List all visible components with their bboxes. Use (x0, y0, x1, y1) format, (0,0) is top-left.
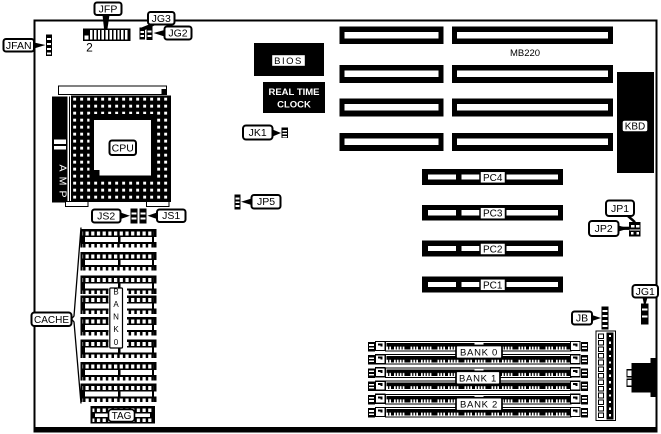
svg-text:PC4: PC4 (483, 173, 503, 184)
svg-text:JG1: JG1 (636, 286, 655, 298)
svg-text:BANK 2: BANK 2 (460, 400, 498, 411)
svg-text:JP1: JP1 (611, 203, 629, 215)
svg-text:KBD: KBD (625, 122, 646, 133)
svg-text:JG3: JG3 (152, 13, 171, 25)
svg-text:JFAN: JFAN (6, 40, 32, 52)
svg-text:0: 0 (114, 338, 119, 347)
svg-text:P: P (57, 190, 69, 197)
svg-text:JS2: JS2 (97, 211, 115, 223)
svg-text:CPU: CPU (112, 143, 134, 155)
svg-text:JS1: JS1 (162, 210, 180, 222)
svg-text:A: A (57, 164, 69, 171)
svg-text:REAL TIME: REAL TIME (268, 87, 319, 98)
svg-text:JP5: JP5 (257, 196, 275, 208)
svg-text:CLOCK: CLOCK (277, 100, 311, 111)
svg-text:PC3: PC3 (483, 209, 503, 220)
svg-text:TAG: TAG (112, 411, 132, 422)
svg-text:K: K (113, 325, 119, 334)
svg-text:MB220: MB220 (510, 48, 540, 59)
svg-text:JB: JB (576, 313, 588, 325)
svg-text:JFP: JFP (99, 4, 118, 16)
svg-text:CACHE: CACHE (34, 315, 69, 326)
svg-text:N: N (113, 313, 119, 322)
svg-text:PC2: PC2 (483, 245, 503, 256)
svg-text:A: A (113, 300, 119, 309)
svg-text:BIOS: BIOS (274, 56, 303, 67)
svg-text:JG2: JG2 (168, 28, 187, 40)
svg-text:BANK 0: BANK 0 (460, 348, 498, 359)
svg-text:JK1: JK1 (249, 127, 267, 139)
svg-text:2: 2 (86, 41, 93, 55)
svg-text:PC1: PC1 (483, 280, 503, 291)
svg-text:JP2: JP2 (595, 223, 613, 235)
svg-text:B: B (113, 288, 118, 297)
svg-text:M: M (57, 177, 69, 186)
svg-text:BANK 1: BANK 1 (459, 373, 497, 384)
